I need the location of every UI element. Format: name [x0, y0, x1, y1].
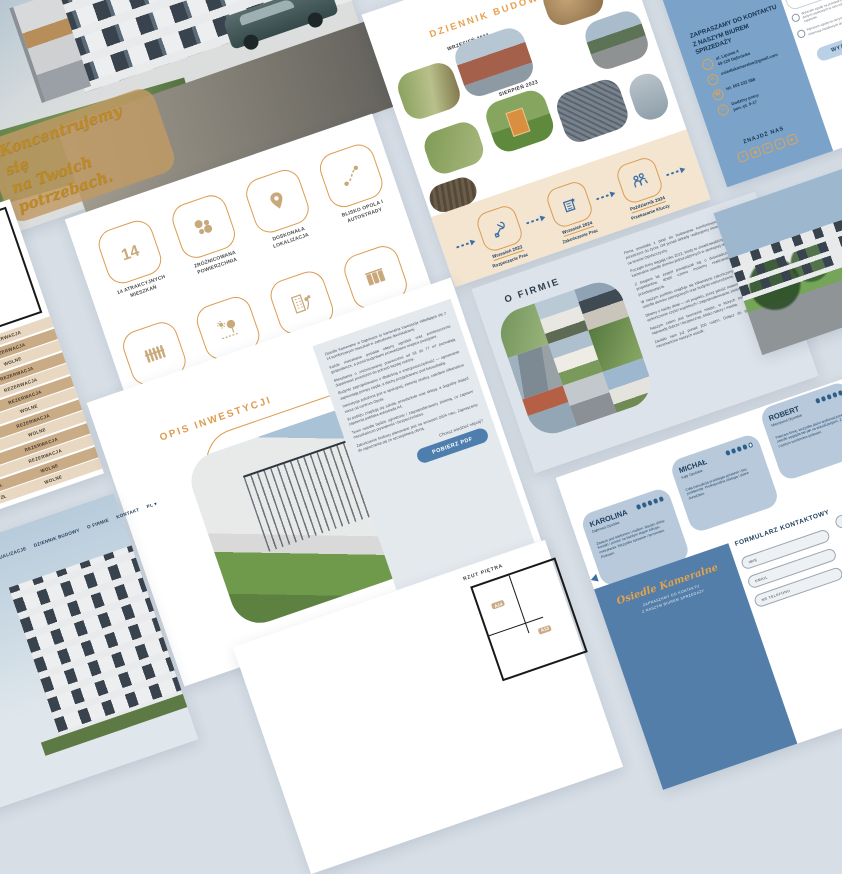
radio-icon[interactable] — [791, 13, 801, 23]
construction-photo — [420, 118, 487, 178]
testimonial-card: ROBERT Mierzęcice Opolskie Polecam firmę… — [759, 380, 842, 482]
price-cell: 364 900 ZŁ — [0, 491, 14, 525]
dashed-arrow-icon — [525, 214, 546, 226]
nav-item[interactable]: DZIENNIK BUDOWY — [33, 528, 81, 549]
timeline-step: Wrzesień 2024 Zakończenie Prac — [544, 179, 600, 245]
testimonial-card: MICHAŁ Kąty Opolskie Cała transakcja prz… — [669, 432, 781, 534]
radio-icon[interactable] — [796, 29, 806, 39]
construction-photo — [553, 76, 632, 147]
construction-photo — [394, 59, 464, 123]
floor-plan-drawing: A14 A13 — [470, 557, 588, 681]
feature-item: DOSKONAŁA LOKALIZACJA — [237, 164, 323, 255]
phone-icon: ☎ — [711, 88, 725, 102]
construction-photo — [625, 69, 672, 124]
construction-photo — [482, 86, 558, 155]
room-label: A13 — [538, 624, 552, 634]
building-windows — [729, 164, 842, 301]
address-icon: ⌂ — [701, 58, 715, 72]
timeline-step: Październik 2024 Przekazanie Kluczy — [614, 155, 671, 221]
rating-dot — [837, 390, 842, 396]
dashed-arrow-icon — [455, 238, 476, 250]
feature-item: 14 14 ATRAKCYJNYCH MIESZKAŃ — [90, 215, 176, 306]
nav-item[interactable]: WIZUALIZACJE — [0, 546, 27, 564]
feature-item: BLISKO OPOLA I AUTOSTRADY — [311, 139, 397, 230]
construction-photo — [581, 7, 652, 73]
nav-item[interactable]: O FIRMIE — [86, 518, 110, 531]
feature-item: ZRÓŻNICOWANA POWIERZCHNIA — [163, 189, 249, 280]
room-label: A14 — [491, 600, 505, 610]
dashed-arrow-icon — [666, 166, 687, 178]
last-name-field[interactable]: NAZWISKO — [834, 484, 842, 529]
svg-text:14: 14 — [119, 242, 141, 264]
carousel-left-icon[interactable] — [589, 574, 598, 584]
timeline-step: Wrzesień 2023 Rozpoczęcie Prac — [474, 203, 530, 269]
email-icon: ✉ — [706, 73, 720, 87]
dashed-arrow-icon — [595, 190, 616, 202]
send-button[interactable]: WYŚLIJ — [815, 32, 842, 63]
